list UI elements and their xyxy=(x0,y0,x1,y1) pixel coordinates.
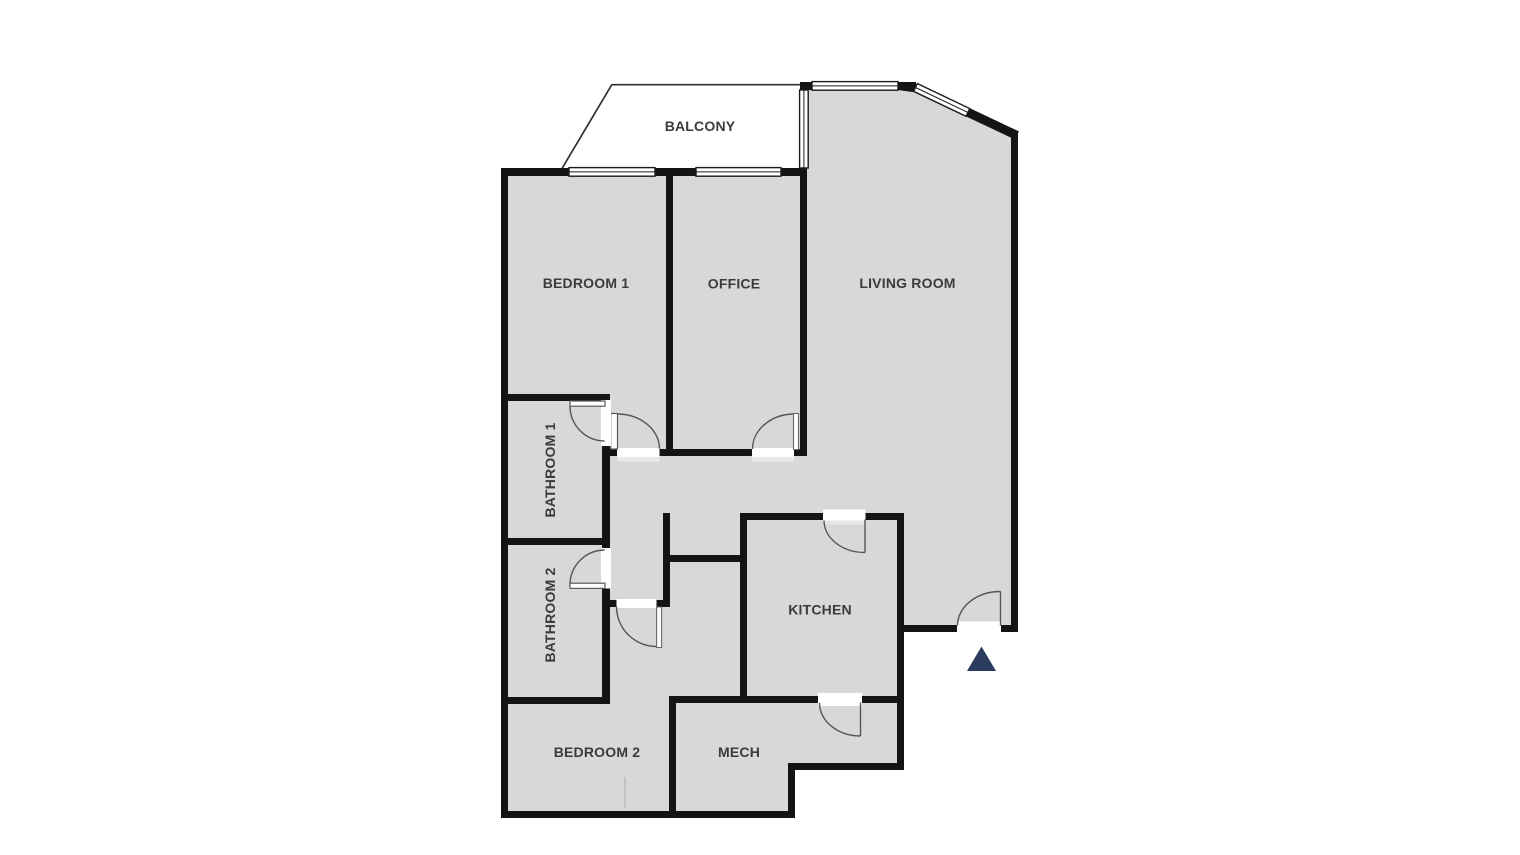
svg-text:BATHROOM 1: BATHROOM 1 xyxy=(542,422,558,517)
svg-text:KITCHEN: KITCHEN xyxy=(788,602,852,618)
svg-text:MECH: MECH xyxy=(718,744,760,760)
svg-text:BEDROOM 1: BEDROOM 1 xyxy=(543,275,630,291)
svg-text:OFFICE: OFFICE xyxy=(708,276,761,292)
svg-text:BALCONY: BALCONY xyxy=(665,118,736,134)
svg-text:BATHROOM 2: BATHROOM 2 xyxy=(542,567,558,662)
svg-text:LIVING ROOM: LIVING ROOM xyxy=(859,275,955,291)
svg-text:BEDROOM 2: BEDROOM 2 xyxy=(554,744,641,760)
